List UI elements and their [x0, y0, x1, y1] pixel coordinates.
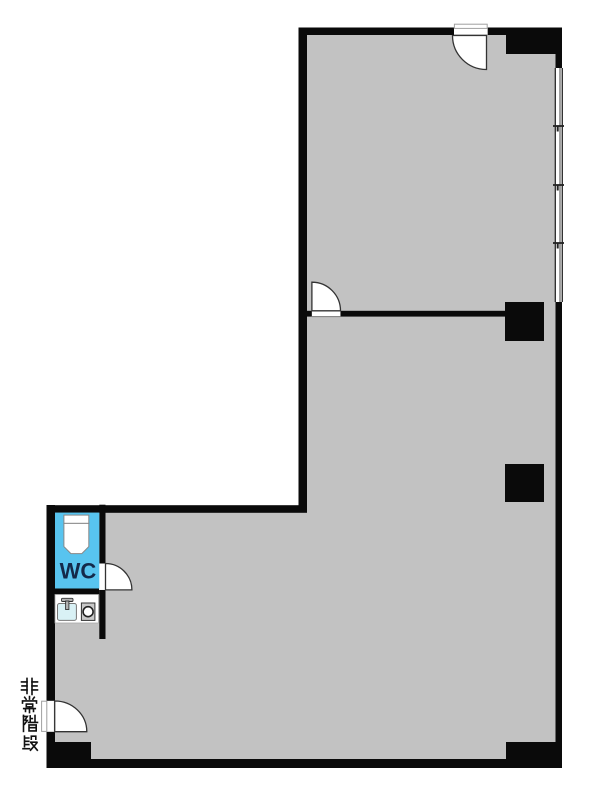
svg-text:WC: WC — [60, 559, 97, 584]
